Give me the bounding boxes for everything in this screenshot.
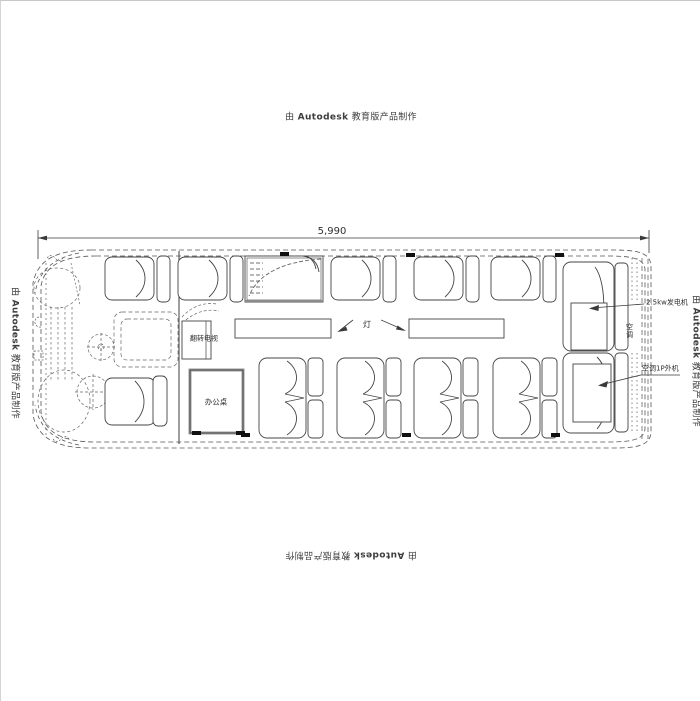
label-flip-tv: 翻转电视 [190, 336, 218, 343]
watermark-right: 由 Autodesk 教育版产品制作 [691, 295, 700, 427]
watermark-brand: Autodesk [691, 308, 700, 359]
watermark-brand: Autodesk [298, 113, 349, 123]
bottom-seat-row [259, 358, 557, 438]
seat [178, 256, 243, 302]
light-leaders [337, 320, 406, 332]
watermark-bottom: 由 Autodesk 教育版产品制作 [285, 550, 417, 559]
double-seat [259, 358, 323, 438]
steering-wheel [87, 333, 115, 361]
watermark-prefix: 由 [691, 295, 700, 304]
rear-body-lines [632, 258, 648, 440]
bus-floorplan-linework [1, 1, 700, 701]
cad-drawing-canvas: 由 Autodesk 教育版产品制作 由 Autodesk 教育版产品制作 由 … [0, 0, 700, 701]
watermark-suffix: 教育版产品制作 [285, 550, 350, 560]
watermark-brand: Autodesk [10, 300, 20, 351]
double-seat [414, 358, 478, 438]
double-seat [493, 358, 557, 438]
label-generator: 2.5kw发电机 [646, 300, 688, 307]
watermark-brand: Autodesk [353, 550, 404, 560]
seat [331, 256, 396, 302]
rear-bench-bottom [563, 353, 628, 433]
seat [491, 256, 556, 302]
watermark-suffix: 教育版产品制作 [352, 113, 417, 123]
watermark-top: 由 Autodesk 教育版产品制作 [285, 114, 417, 123]
watermark-prefix: 由 [285, 113, 294, 123]
generator-box [571, 303, 607, 350]
watermark-suffix: 教育版产品制作 [10, 354, 20, 419]
ac-outdoor-unit-box [573, 364, 611, 422]
label-ac-outdoor-unit: 空调1P外机 [642, 366, 679, 373]
label-air-conditioner: 空调 [626, 323, 633, 339]
watermark-left: 由 Autodesk 教育版产品制作 [10, 287, 19, 419]
watermark-prefix: 由 [10, 287, 20, 296]
seat [414, 256, 479, 302]
label-light: 灯 [363, 321, 371, 329]
double-seat [337, 358, 401, 438]
watermark-prefix: 由 [408, 550, 417, 560]
watermark-suffix: 教育版产品制作 [691, 362, 700, 427]
label-office-desk: 办公桌 [205, 398, 228, 406]
dimension-label: 5,990 [318, 227, 347, 237]
entry-door [245, 256, 323, 302]
top-seat-row [105, 256, 556, 302]
driver-seat [105, 376, 167, 426]
seat [105, 256, 170, 302]
